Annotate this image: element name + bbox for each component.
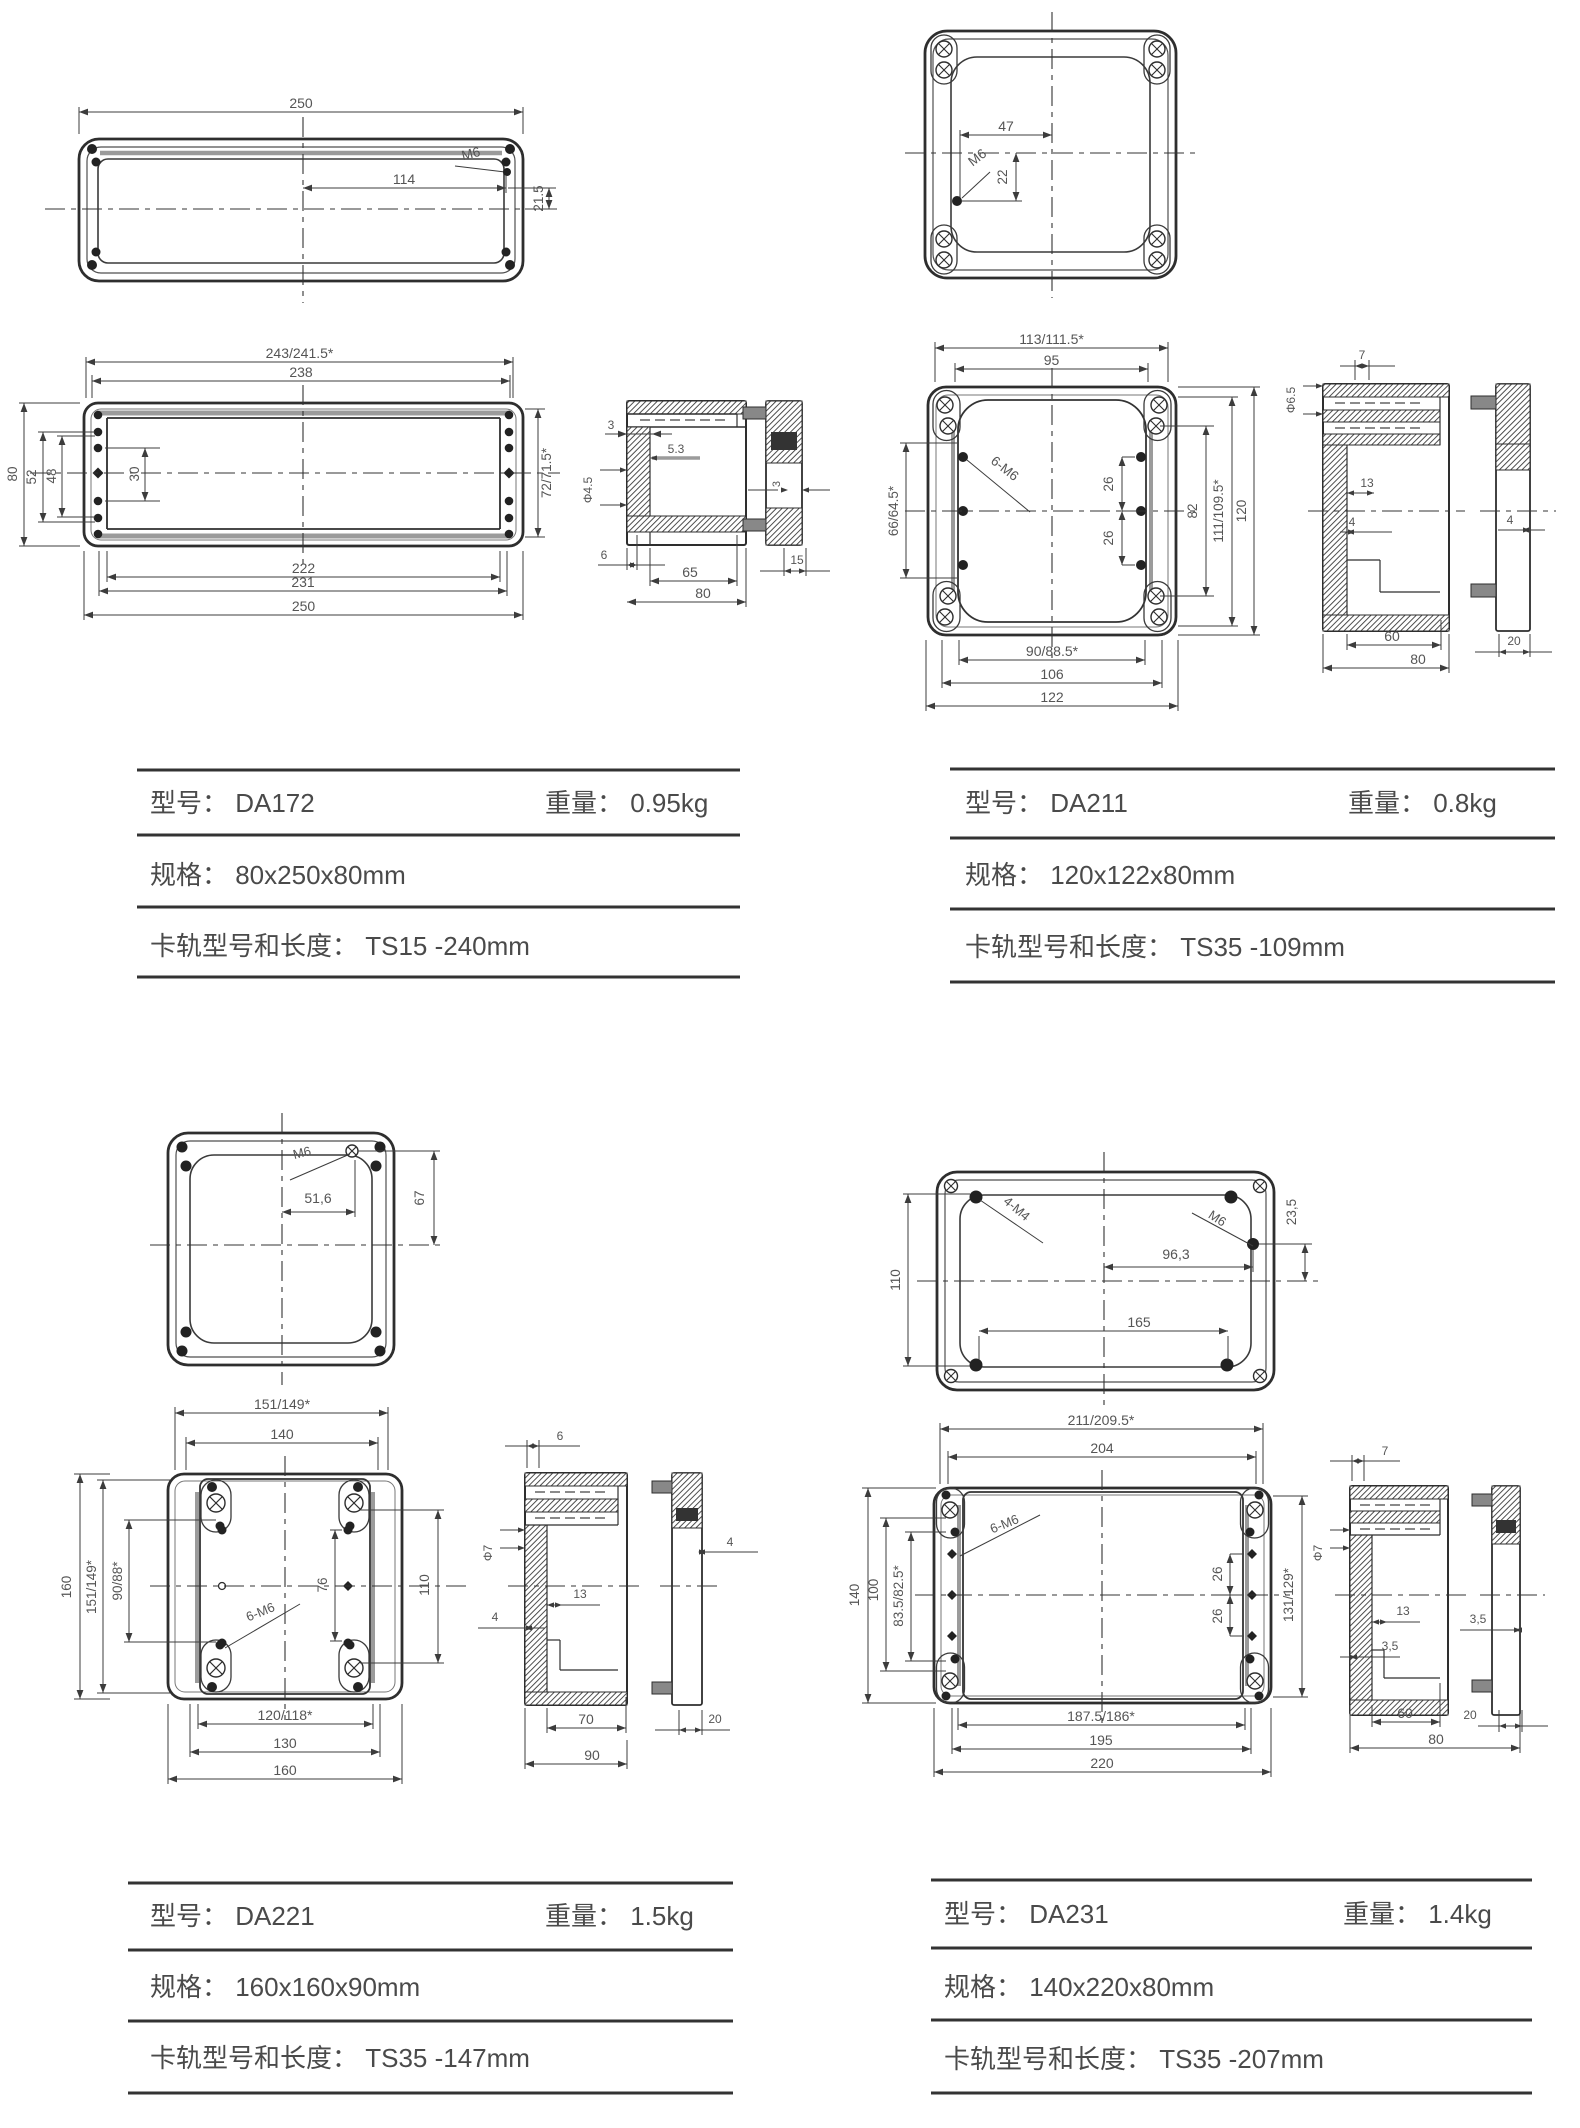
- svg-text:6: 6: [557, 1429, 564, 1443]
- svg-text:20: 20: [708, 1712, 722, 1726]
- svg-text:47: 47: [998, 118, 1014, 134]
- svg-text:13: 13: [1360, 476, 1374, 490]
- svg-text:65: 65: [682, 564, 698, 580]
- svg-text:3: 3: [771, 481, 783, 487]
- svg-text:204: 204: [1090, 1440, 1114, 1456]
- svg-text:20: 20: [1463, 1708, 1477, 1722]
- svg-text:重量： 1.5kg: 重量： 1.5kg: [545, 1901, 694, 1931]
- svg-text:5.3: 5.3: [668, 442, 685, 456]
- svg-text:67: 67: [412, 1190, 427, 1205]
- svg-text:卡轨型号和长度： TS35 -147mm: 卡轨型号和长度： TS35 -147mm: [150, 2043, 530, 2073]
- svg-text:130: 130: [273, 1735, 297, 1751]
- svg-text:96,3: 96,3: [1162, 1246, 1189, 1262]
- svg-text:140: 140: [270, 1426, 294, 1442]
- svg-text:6: 6: [601, 548, 608, 562]
- svg-text:52: 52: [24, 469, 39, 484]
- svg-text:113/111.5*: 113/111.5*: [1019, 331, 1084, 347]
- svg-text:重量： 0.8kg: 重量： 0.8kg: [1348, 788, 1497, 818]
- svg-text:21.5: 21.5: [531, 185, 546, 211]
- svg-text:3,5: 3,5: [1382, 1639, 1399, 1653]
- svg-text:重量： 1.4kg: 重量： 1.4kg: [1343, 1899, 1492, 1929]
- svg-text:卡轨型号和长度： TS35 -207mm: 卡轨型号和长度： TS35 -207mm: [944, 2044, 1324, 2074]
- svg-text:160: 160: [273, 1762, 297, 1778]
- svg-text:型号： DA221: 型号： DA221: [150, 1901, 315, 1931]
- svg-text:82: 82: [1185, 503, 1200, 518]
- svg-text:60: 60: [1397, 1705, 1413, 1721]
- svg-text:90/88*: 90/88*: [110, 1561, 125, 1601]
- svg-text:26: 26: [1210, 1566, 1225, 1581]
- svg-text:66/64.5*: 66/64.5*: [886, 485, 901, 536]
- svg-text:106: 106: [1040, 666, 1064, 682]
- svg-text:243/241.5*: 243/241.5*: [266, 345, 334, 361]
- svg-text:122: 122: [1040, 689, 1064, 705]
- svg-text:70: 70: [578, 1711, 594, 1727]
- svg-text:160: 160: [59, 1576, 74, 1599]
- svg-text:26: 26: [1101, 476, 1116, 491]
- svg-text:卡轨型号和长度： TS15 -240mm: 卡轨型号和长度： TS15 -240mm: [150, 931, 530, 961]
- svg-text:238: 238: [289, 364, 313, 380]
- svg-text:30: 30: [127, 466, 142, 481]
- svg-text:型号： DA231: 型号： DA231: [944, 1899, 1109, 1929]
- svg-text:76: 76: [315, 1577, 330, 1592]
- svg-text:13: 13: [1396, 1604, 1410, 1618]
- svg-text:100: 100: [866, 1579, 881, 1602]
- svg-text:规格： 140x220x80mm: 规格： 140x220x80mm: [944, 1972, 1214, 2002]
- svg-text:26: 26: [1101, 530, 1116, 545]
- svg-text:4: 4: [727, 1535, 734, 1549]
- svg-text:187.5/186*: 187.5/186*: [1067, 1708, 1135, 1724]
- svg-text:22: 22: [995, 169, 1010, 184]
- svg-text:Φ7: Φ7: [481, 1545, 495, 1562]
- svg-text:4: 4: [492, 1610, 499, 1624]
- svg-text:83.5/82.5*: 83.5/82.5*: [891, 1564, 906, 1626]
- svg-text:Φ6.5: Φ6.5: [1284, 387, 1298, 414]
- svg-text:20: 20: [1507, 634, 1521, 648]
- svg-text:95: 95: [1044, 352, 1060, 368]
- svg-text:231: 231: [291, 574, 315, 590]
- svg-text:15: 15: [790, 553, 804, 567]
- svg-text:3,5: 3,5: [1470, 1612, 1487, 1626]
- svg-text:80: 80: [1428, 1731, 1444, 1747]
- svg-text:120: 120: [1234, 500, 1249, 523]
- svg-text:120/118*: 120/118*: [257, 1707, 313, 1723]
- svg-text:151/149*: 151/149*: [84, 1559, 99, 1614]
- svg-text:4: 4: [1507, 513, 1514, 527]
- svg-text:4: 4: [1349, 515, 1356, 529]
- svg-text:Φ7: Φ7: [1311, 1545, 1325, 1562]
- svg-text:13: 13: [573, 1587, 587, 1601]
- svg-text:220: 220: [1090, 1755, 1114, 1771]
- svg-text:60: 60: [1384, 628, 1400, 644]
- svg-text:80: 80: [695, 585, 711, 601]
- svg-text:卡轨型号和长度： TS35 -109mm: 卡轨型号和长度： TS35 -109mm: [965, 932, 1345, 962]
- svg-text:23,5: 23,5: [1284, 1199, 1299, 1225]
- svg-text:7: 7: [1382, 1444, 1389, 1458]
- svg-text:7: 7: [1359, 348, 1366, 362]
- svg-text:规格： 120x122x80mm: 规格： 120x122x80mm: [965, 860, 1235, 890]
- svg-text:111/109.5*: 111/109.5*: [1211, 479, 1226, 543]
- svg-text:90: 90: [584, 1747, 600, 1763]
- svg-text:型号： DA172: 型号： DA172: [150, 788, 315, 818]
- svg-text:26: 26: [1210, 1608, 1225, 1623]
- svg-text:48: 48: [44, 468, 59, 483]
- svg-text:114: 114: [393, 171, 416, 187]
- svg-text:250: 250: [289, 95, 313, 111]
- svg-text:151/149*: 151/149*: [254, 1396, 311, 1412]
- svg-text:195: 195: [1089, 1732, 1113, 1748]
- svg-text:72/71.5*: 72/71.5*: [539, 447, 554, 498]
- svg-text:51,6: 51,6: [304, 1190, 331, 1206]
- svg-text:型号： DA211: 型号： DA211: [965, 788, 1128, 818]
- svg-text:80: 80: [1410, 651, 1426, 667]
- svg-text:规格： 160x160x90mm: 规格： 160x160x90mm: [150, 1972, 420, 2002]
- svg-text:250: 250: [292, 598, 316, 614]
- svg-text:211/209.5*: 211/209.5*: [1068, 1412, 1135, 1428]
- svg-text:110: 110: [888, 1269, 903, 1291]
- svg-text:131/129*: 131/129*: [1281, 1567, 1296, 1622]
- svg-text:90/88.5*: 90/88.5*: [1026, 643, 1079, 659]
- svg-text:规格： 80x250x80mm: 规格： 80x250x80mm: [150, 860, 406, 890]
- svg-text:110: 110: [417, 1574, 432, 1596]
- svg-text:140: 140: [847, 1584, 862, 1607]
- svg-text:80: 80: [5, 466, 20, 481]
- svg-text:重量： 0.95kg: 重量： 0.95kg: [545, 788, 708, 818]
- svg-text:3: 3: [608, 418, 615, 432]
- svg-text:Φ4.5: Φ4.5: [581, 477, 595, 504]
- svg-text:165: 165: [1127, 1314, 1151, 1330]
